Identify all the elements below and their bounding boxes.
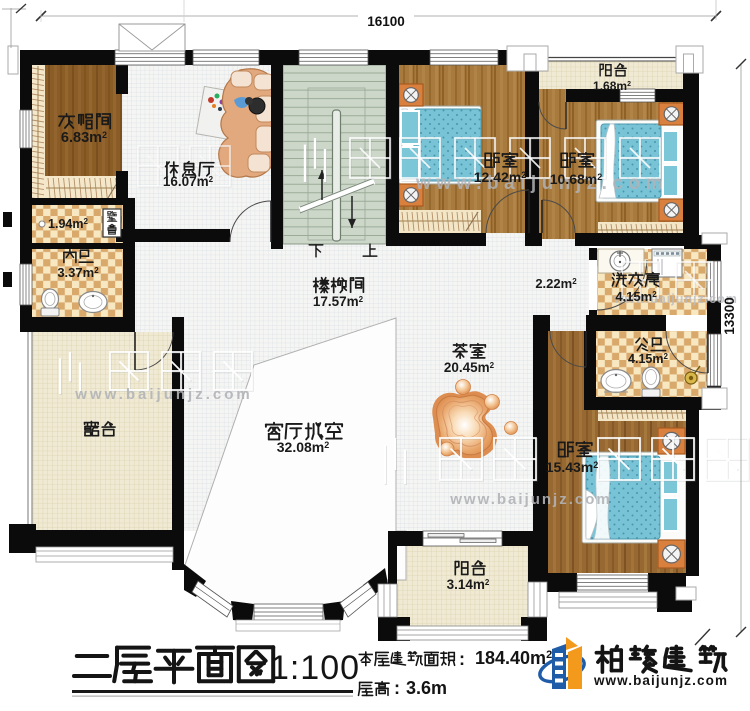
svg-text::: : [394, 678, 400, 698]
svg-text:20.45m2: 20.45m2 [444, 360, 495, 375]
svg-text:16100: 16100 [367, 14, 405, 29]
svg-text:12.42m2: 12.42m2 [474, 169, 527, 185]
svg-text:10.68m2: 10.68m2 [550, 171, 603, 187]
svg-text:13300: 13300 [722, 297, 737, 335]
svg-text:www.baijunjz.com: www.baijunjz.com [593, 673, 728, 688]
svg-text:32.08m2: 32.08m2 [277, 439, 330, 455]
svg-text:4.15m2: 4.15m2 [628, 352, 668, 366]
svg-text:3.14m2: 3.14m2 [447, 577, 490, 592]
svg-text:2.22m2: 2.22m2 [535, 276, 577, 291]
svg-text:6.83m2: 6.83m2 [61, 130, 107, 146]
svg-text:www.baijunjz.com: www.baijunjz.com [449, 491, 611, 508]
svg-text:www.baijunjz.com: www.baijunjz.com [415, 173, 668, 194]
svg-text:3.37m2: 3.37m2 [57, 265, 99, 280]
svg-text:1.68m2: 1.68m2 [593, 79, 631, 93]
svg-text:17.57m2: 17.57m2 [313, 294, 364, 309]
svg-text:184.40m2: 184.40m2 [475, 648, 552, 668]
svg-text:www.baijunjz.com: www.baijunjz.com [74, 386, 252, 403]
svg-text:16.07m2: 16.07m2 [163, 174, 214, 189]
svg-text:3.6m: 3.6m [406, 678, 447, 698]
svg-text:4.15m2: 4.15m2 [615, 289, 657, 304]
svg-text:1:100: 1:100 [270, 649, 360, 687]
svg-text:15.43m2: 15.43m2 [546, 459, 599, 475]
svg-text:1.94m2: 1.94m2 [48, 217, 88, 231]
svg-text::: : [459, 649, 465, 669]
